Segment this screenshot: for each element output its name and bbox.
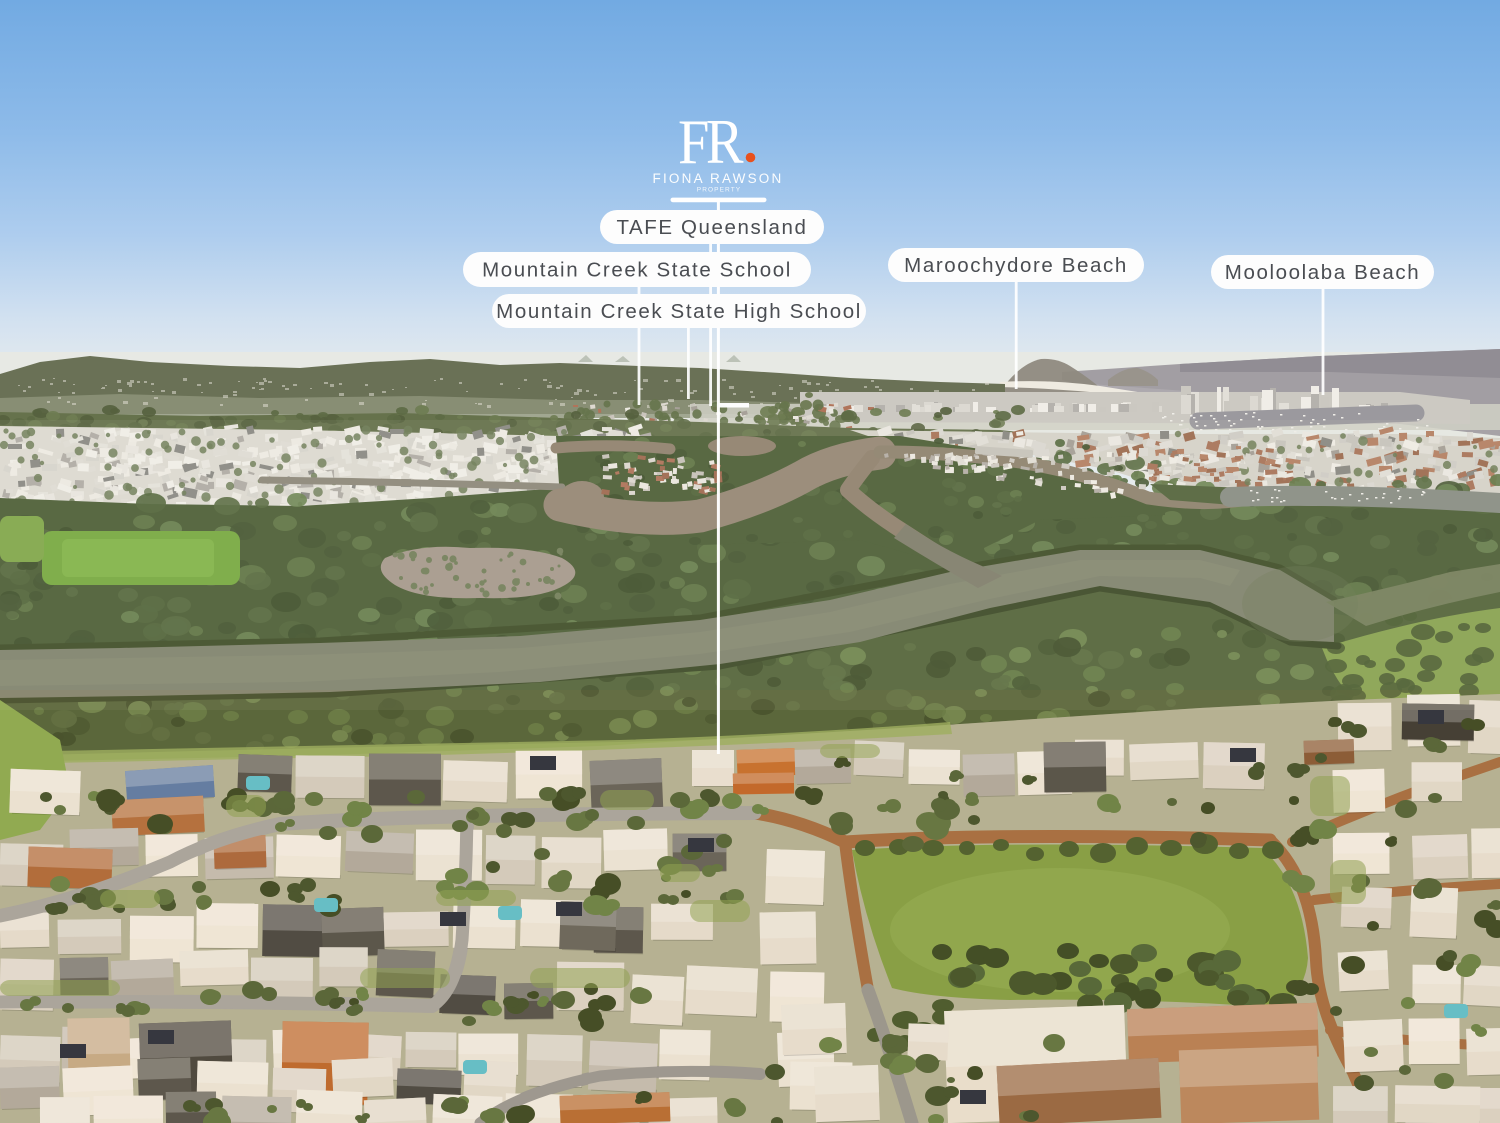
svg-text:PROPERTY: PROPERTY <box>697 187 741 194</box>
svg-text:TAFE Queensland: TAFE Queensland <box>616 216 807 239</box>
svg-text:Mountain Creek State High Scho: Mountain Creek State High School <box>496 300 862 323</box>
svg-text:Mountain Creek State School: Mountain Creek State School <box>482 259 792 282</box>
svg-text:Maroochydore Beach: Maroochydore Beach <box>904 254 1128 277</box>
svg-text:FR: FR <box>678 106 744 177</box>
svg-text:Mooloolaba Beach: Mooloolaba Beach <box>1225 261 1420 284</box>
svg-text:FIONA RAWSON: FIONA RAWSON <box>653 171 784 186</box>
